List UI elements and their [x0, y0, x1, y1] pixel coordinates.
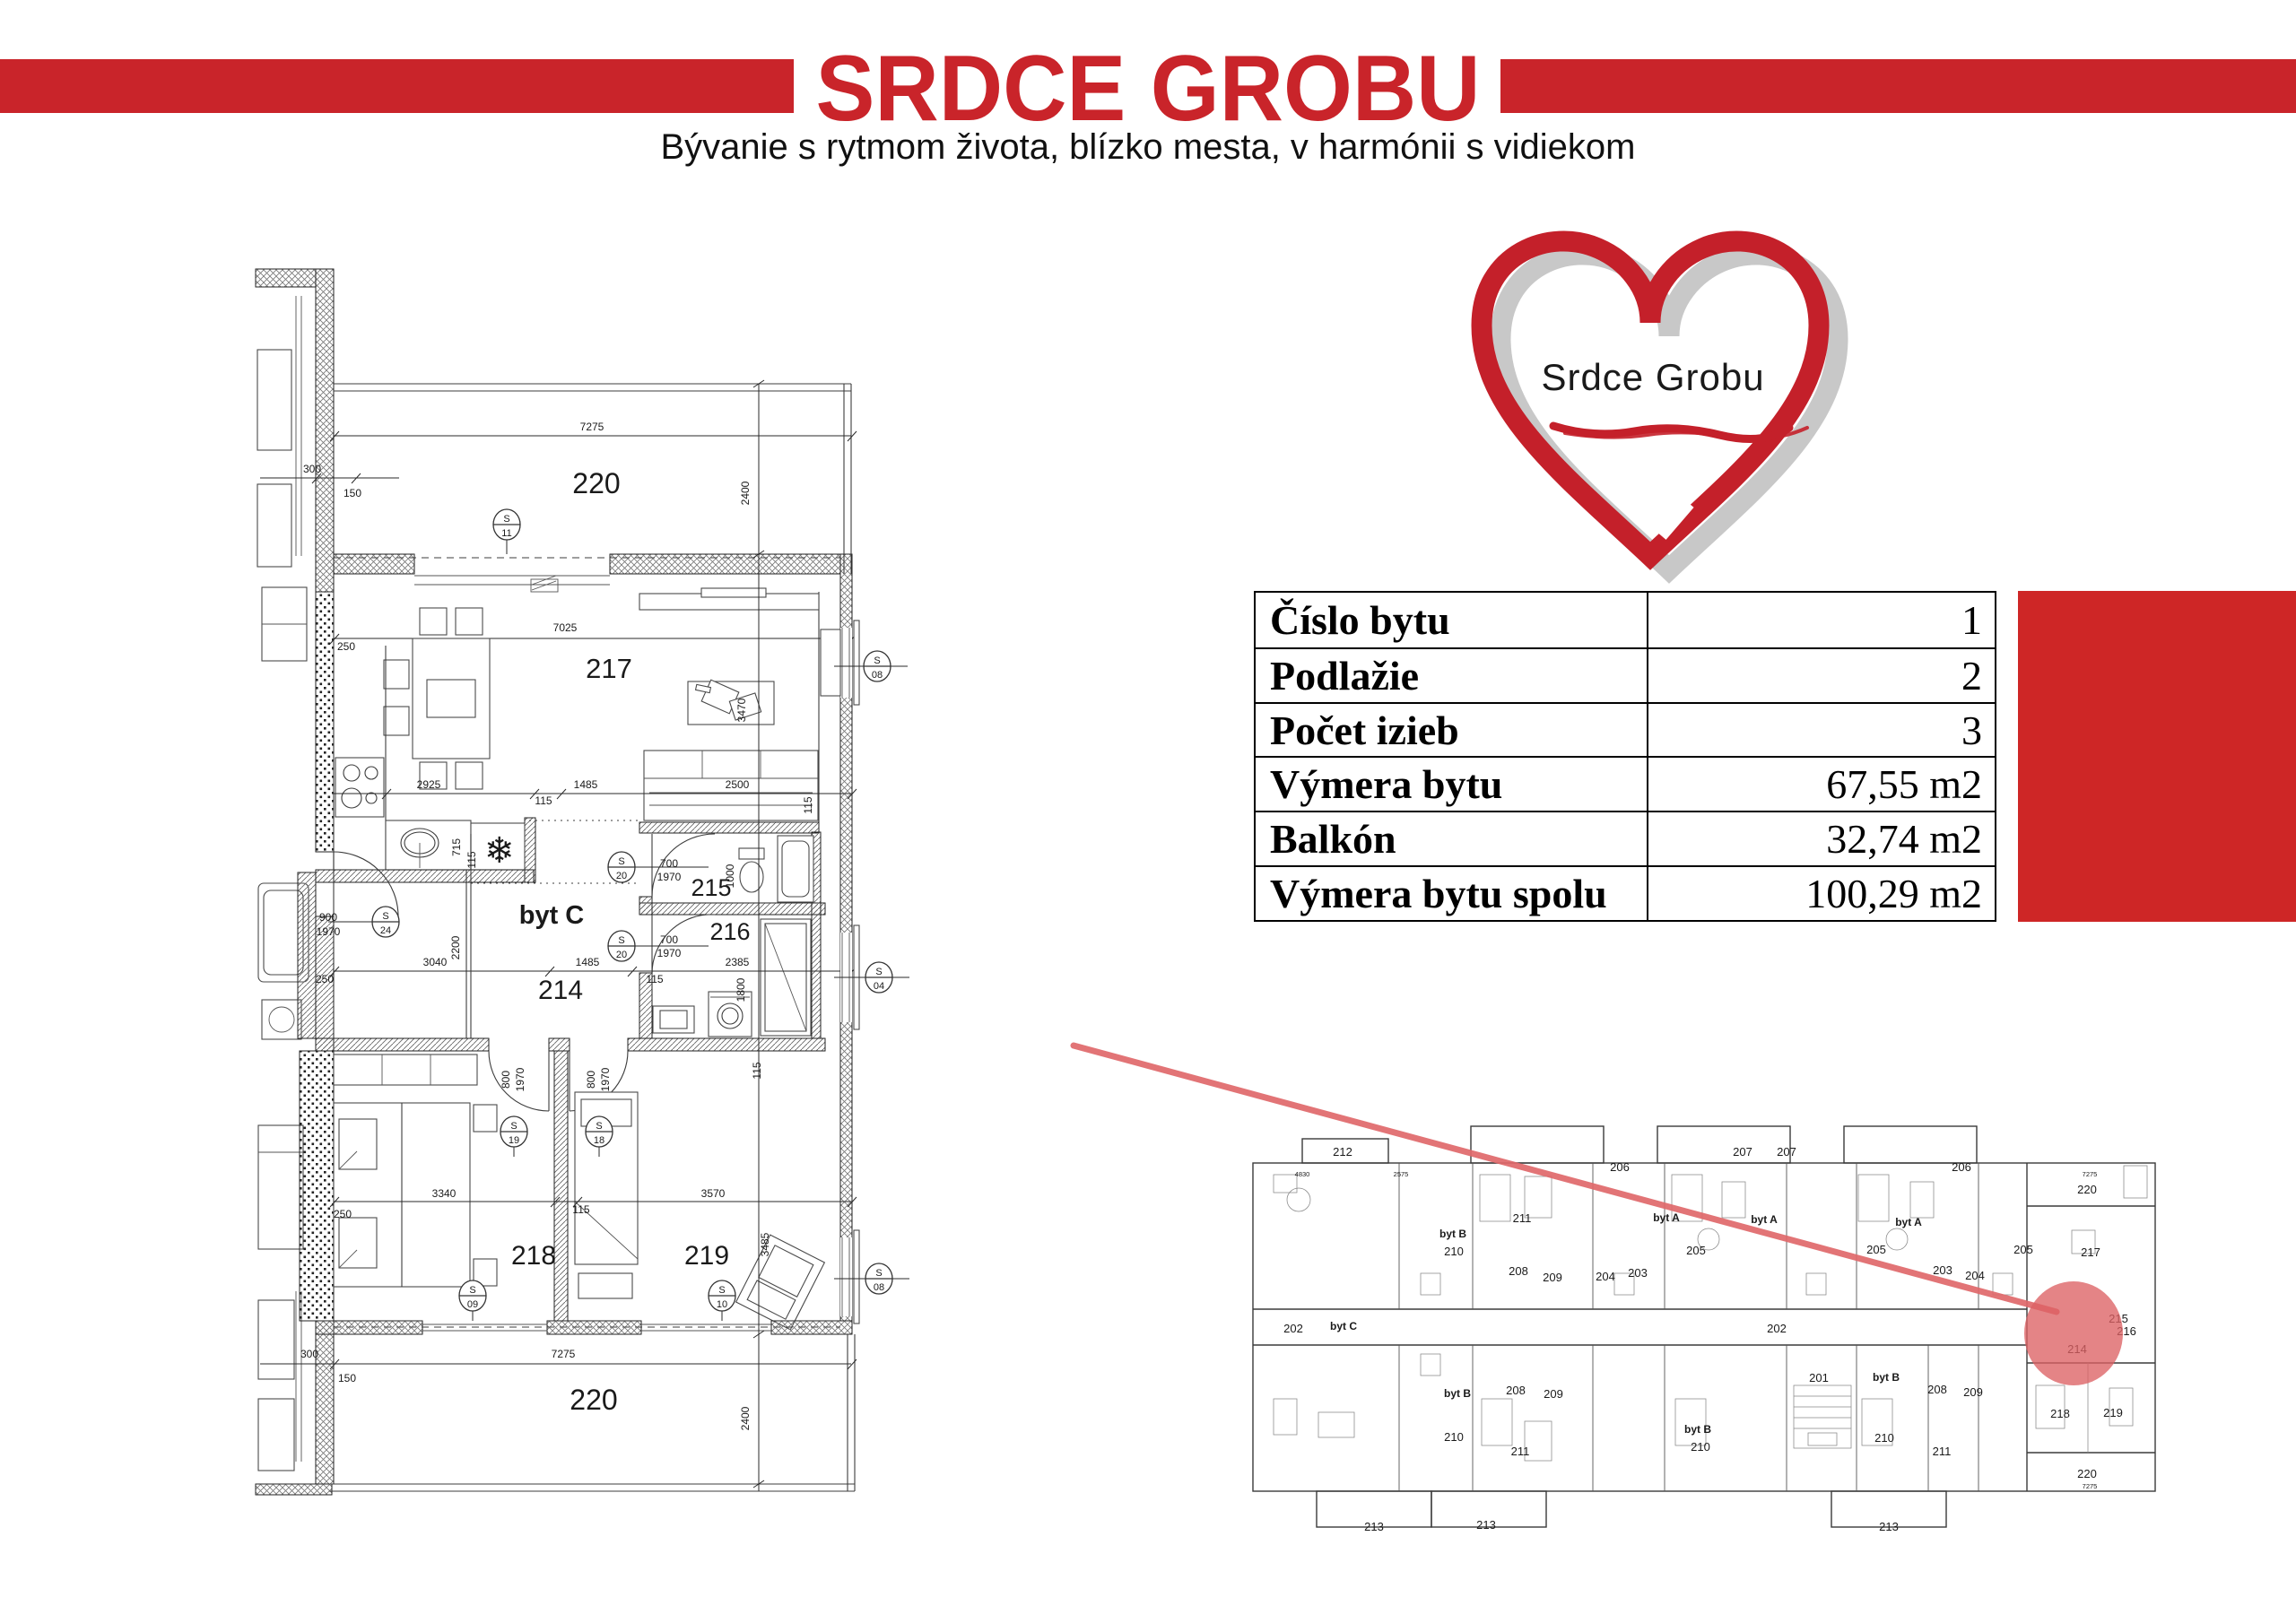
- pointer-line: [1074, 1046, 2057, 1312]
- highlight-overlay: [0, 0, 2296, 1623]
- apartment-highlight-circle: [2024, 1281, 2123, 1385]
- brochure-page: SRDCE GROBU Bývanie s rytmom života, blí…: [0, 0, 2296, 1623]
